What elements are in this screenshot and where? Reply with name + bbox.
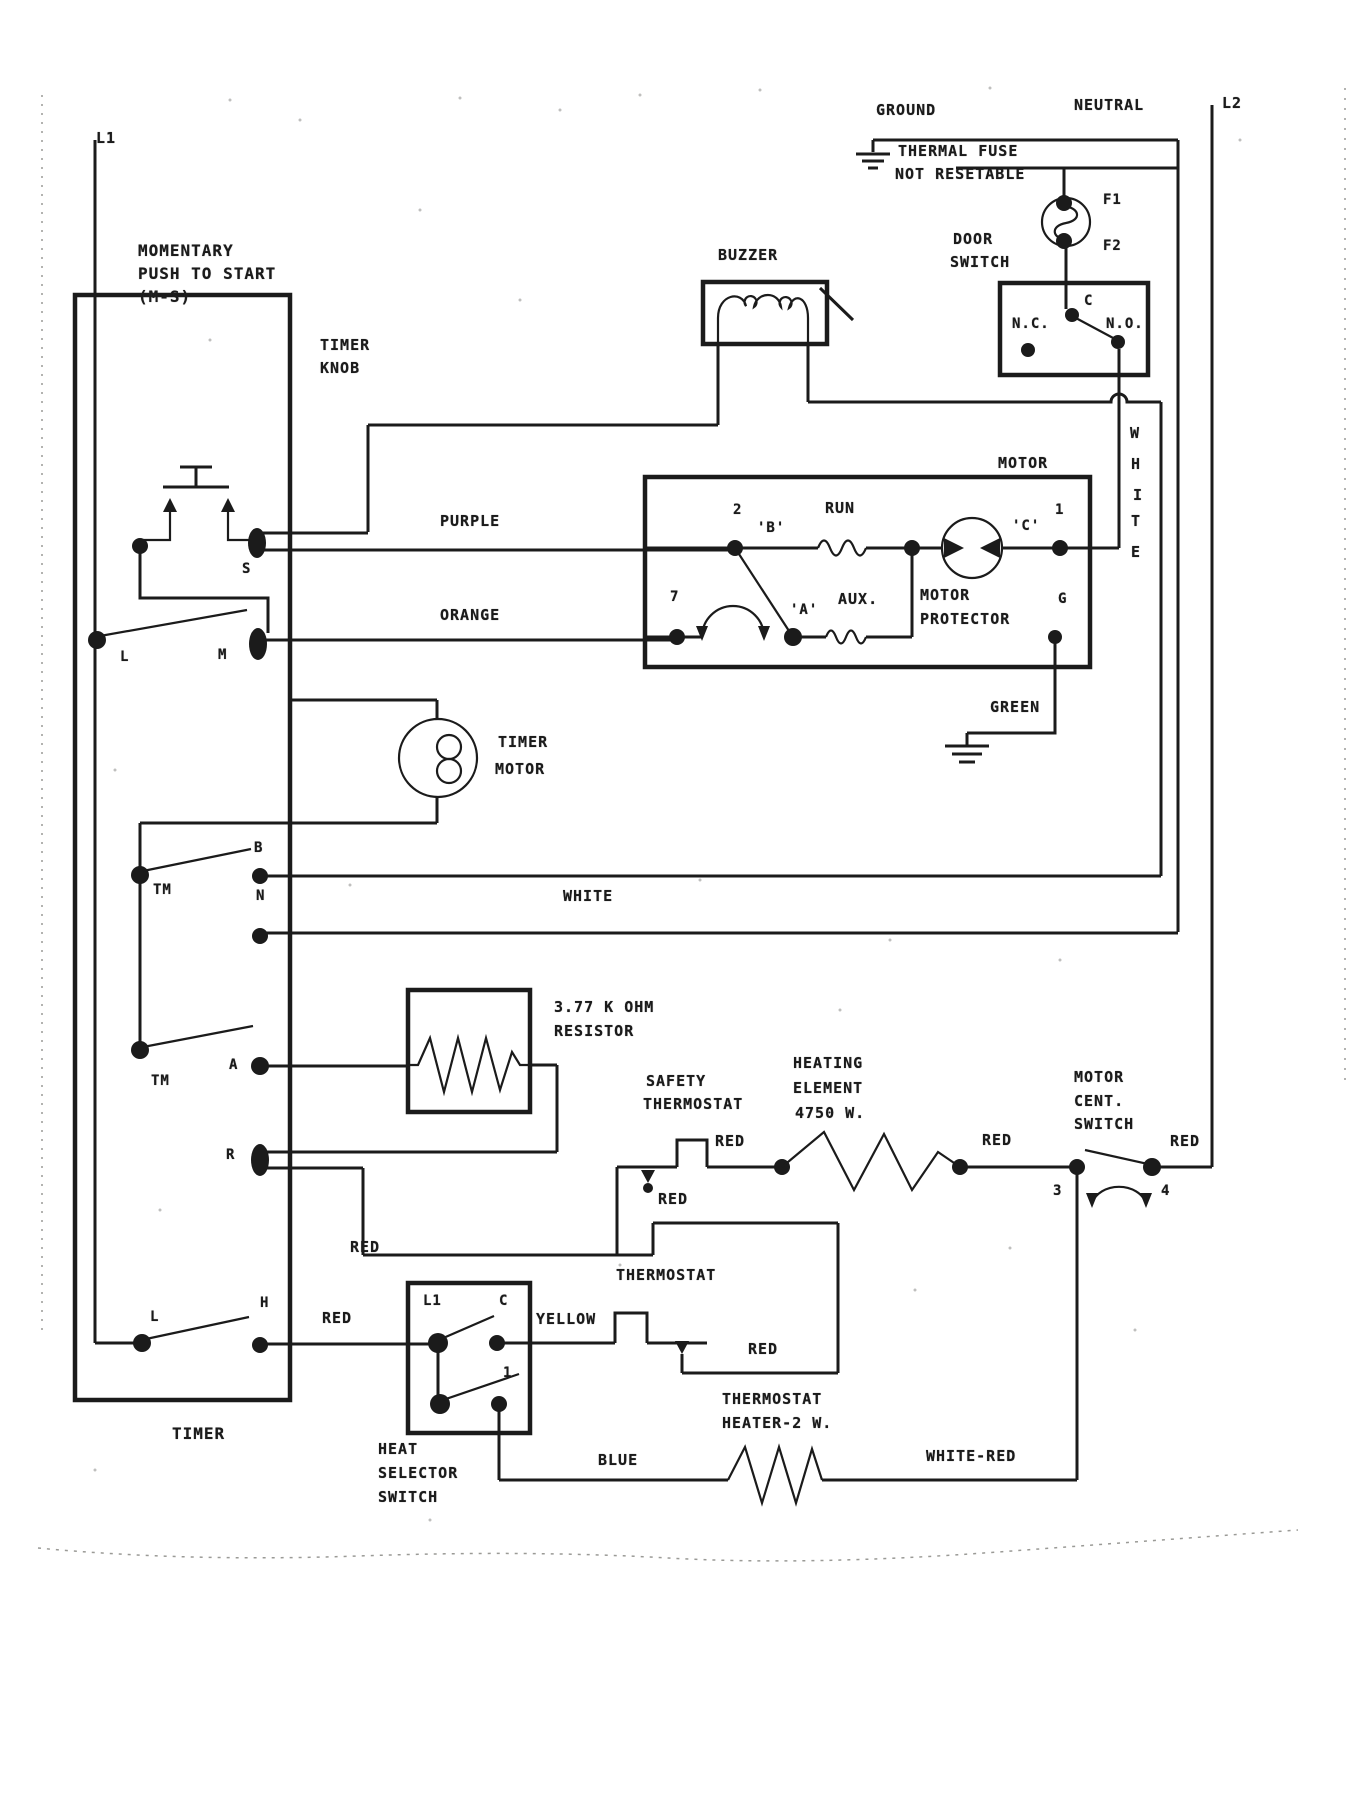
- motor-terminal-7: 7: [670, 590, 679, 604]
- timer-contact-h: H: [260, 1296, 269, 1310]
- timer-contact-s: S: [242, 562, 251, 576]
- heat-selector-label-3: SWITCH: [378, 1490, 438, 1505]
- cent-switch-terminal-4: 4: [1161, 1184, 1170, 1198]
- door-switch-label-2: SWITCH: [950, 255, 1010, 270]
- purple-wire-label: PURPLE: [440, 514, 500, 529]
- motor-terminal-g: G: [1058, 592, 1067, 606]
- heating-element-label-1: HEATING: [793, 1056, 863, 1071]
- white-wire-label: WHITE: [563, 889, 613, 904]
- timer-motor-label-2: MOTOR: [495, 762, 545, 777]
- red-wire-label-2: RED: [982, 1133, 1012, 1148]
- safety-thermostat-label-1: SAFETY: [646, 1074, 706, 1089]
- motor-label: MOTOR: [998, 456, 1048, 471]
- white-red-wire-label: WHITE-RED: [926, 1449, 1016, 1464]
- motor-terminal-1: 1: [1055, 503, 1064, 517]
- resistor-label-2: RESISTOR: [554, 1024, 634, 1039]
- timer-contact-n: N: [256, 889, 265, 903]
- motor-cent-switch-symbol: [1077, 1150, 1212, 1480]
- thermostat-label: THERMOSTAT: [616, 1268, 716, 1283]
- timer-knob-label-2: KNOB: [320, 361, 360, 376]
- timer-contact-l-bot: L: [150, 1310, 159, 1324]
- red-wire-label-6: RED: [322, 1311, 352, 1326]
- resistor-label-1: 3.77 K OHM: [554, 1000, 654, 1015]
- momentary-label-3: (M-S): [138, 289, 191, 305]
- ground-label: GROUND: [876, 103, 936, 118]
- neutral-ground-wires: [856, 140, 1178, 932]
- red-wire-label-4: RED: [658, 1192, 688, 1207]
- heater-row: [617, 1132, 1085, 1193]
- wiring-diagram-page: L1 L2 GROUND NEUTRAL THERMAL FUSE NOT RE…: [0, 0, 1352, 1804]
- thermostat-heater-label-1: THERMOSTAT: [722, 1392, 822, 1407]
- door-contact-no: N.O.: [1106, 317, 1144, 331]
- buzzer-label: BUZZER: [718, 248, 778, 263]
- white-vertical-letter-i: I: [1133, 486, 1142, 504]
- timer-contact-b: B: [254, 841, 263, 855]
- neutral-label: NEUTRAL: [1074, 98, 1144, 113]
- fuse-terminal-f1: F1: [1103, 193, 1122, 207]
- white-vertical-letter-w: W: [1130, 424, 1139, 442]
- heat-selector-label-1: HEAT: [378, 1442, 418, 1457]
- motor-symbol: [645, 477, 1119, 667]
- timer-label: TIMER: [172, 1426, 225, 1442]
- green-wire-label: GREEN: [990, 700, 1040, 715]
- heating-element-label-2: ELEMENT: [793, 1081, 863, 1096]
- motor-cent-switch-label-2: CENT.: [1074, 1094, 1124, 1109]
- momentary-switch-symbol: [88, 467, 268, 660]
- white-vertical-letter-h: H: [1131, 455, 1140, 473]
- momentary-label-2: PUSH TO START: [138, 266, 276, 282]
- thermostat-heater-label-2: HEATER-2 W.: [722, 1416, 832, 1431]
- thermal-fuse-label-1: THERMAL FUSE: [898, 144, 1018, 159]
- red-wire-label-3: RED: [1170, 1134, 1200, 1149]
- motor-terminal-b: 'B': [757, 521, 785, 535]
- motor-aux-label: AUX.: [838, 592, 878, 607]
- motor-cent-switch-label-1: MOTOR: [1074, 1070, 1124, 1085]
- motor-run-label: RUN: [825, 501, 855, 516]
- resistor-symbol: [251, 990, 557, 1176]
- timer-motor-label-1: TIMER: [498, 735, 548, 750]
- cent-switch-terminal-3: 3: [1053, 1184, 1062, 1198]
- timer-bottom-contacts: [95, 1317, 438, 1353]
- timer-motor-symbol: [140, 700, 477, 875]
- heat-selector-terminal-1: 1: [503, 1366, 512, 1380]
- motor-cent-switch-label-3: SWITCH: [1074, 1117, 1134, 1132]
- door-contact-c: C: [1084, 294, 1093, 308]
- motor-protector-label-2: PROTECTOR: [920, 612, 1010, 627]
- white-vertical-letter-e: E: [1131, 543, 1140, 561]
- heat-selector-terminal-c: C: [499, 1294, 508, 1308]
- red-wire-label-1: RED: [715, 1134, 745, 1149]
- momentary-label-1: MOMENTARY: [138, 243, 234, 259]
- heat-selector-terminal-l1: L1: [423, 1294, 442, 1308]
- red-wire-label-5: RED: [350, 1240, 380, 1255]
- thermal-fuse-symbol: [1042, 168, 1090, 309]
- timer-contact-m: M: [218, 648, 227, 662]
- white-vertical-letter-t: T: [1131, 512, 1140, 530]
- heat-selector-label-2: SELECTOR: [378, 1466, 458, 1481]
- thermal-fuse-label-2: NOT RESETABLE: [895, 167, 1025, 182]
- orange-wire-label: ORANGE: [440, 608, 500, 623]
- motor-terminal-2: 2: [733, 503, 742, 517]
- timer-contact-a: A: [229, 1058, 238, 1072]
- buzzer-symbol: [368, 282, 853, 532]
- heating-element-label-3: 4750 W.: [795, 1106, 865, 1121]
- timer-knob-label-1: TIMER: [320, 338, 370, 353]
- yellow-wire-label: YELLOW: [536, 1312, 596, 1327]
- door-contact-nc: N.C.: [1012, 317, 1050, 331]
- fuse-terminal-f2: F2: [1103, 239, 1122, 253]
- timer-contact-l-mid: L: [120, 650, 129, 664]
- motor-terminal-c: 'C': [1012, 519, 1040, 533]
- timer-contact-tm1: TM: [153, 883, 172, 897]
- red-wire-label-7: RED: [748, 1342, 778, 1357]
- motor-terminal-a: 'A': [790, 603, 818, 617]
- blue-wire-label: BLUE: [598, 1453, 638, 1468]
- motor-protector-label-1: MOTOR: [920, 588, 970, 603]
- l2-label: L2: [1222, 96, 1242, 111]
- timer-contact-tm2: TM: [151, 1074, 170, 1088]
- door-switch-label-1: DOOR: [953, 232, 993, 247]
- timer-contact-r: R: [226, 1148, 235, 1162]
- l1-label: L1: [96, 131, 116, 146]
- safety-thermostat-label-2: THERMOSTAT: [643, 1097, 743, 1112]
- white-wire-run: [808, 394, 1161, 876]
